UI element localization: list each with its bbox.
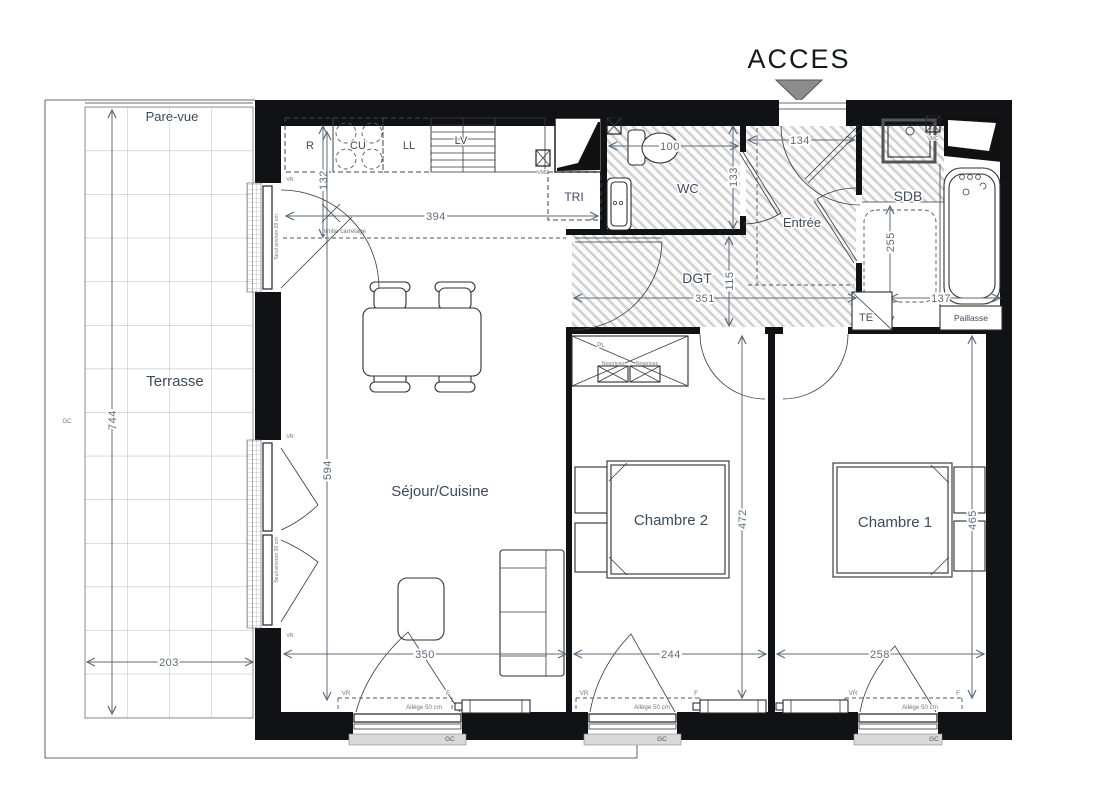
sejour-label: Séjour/Cuisine <box>391 483 489 500</box>
window-chambre2-swing <box>590 634 675 712</box>
wall-chambre2-chambre1 <box>768 334 775 712</box>
floor-plan-page: Pare-vue Terrasse GC 744 203 <box>0 0 1108 800</box>
chambre1-height-dim: 465 <box>967 510 979 530</box>
chambre2-label: Chambre 2 <box>634 512 708 529</box>
tile-limit-label: limite carrelage <box>324 228 367 235</box>
dgt-label: DGT <box>682 270 712 286</box>
radiator-chambre2-valve <box>693 703 700 710</box>
wall-right-lower <box>986 327 1012 740</box>
wall-chambers-top-1 <box>566 327 700 334</box>
radiator-chambre1-valve <box>776 703 783 710</box>
dishwasher-label: LV <box>455 135 468 147</box>
vmc-box-kitchen-cross <box>536 150 550 166</box>
rug <box>398 578 444 640</box>
window-sejour: VR F Allège 50 cm GC <box>338 632 466 745</box>
wc-depth-dim: 133 <box>728 167 740 187</box>
nightstand-c1-1 <box>954 467 985 513</box>
window-chambre2-vr: VR <box>580 690 589 697</box>
chair-back-3 <box>370 382 410 392</box>
sdb-depth-dim: 255 <box>885 232 897 252</box>
wall-bottom-1 <box>255 712 353 740</box>
vmc-kitchen-label: VMC <box>537 170 549 176</box>
chambre1-door-arc <box>783 334 848 399</box>
terrace-door-1-vr: VR <box>286 177 293 183</box>
entree-label: Entrée <box>783 215 821 230</box>
kitchen: R CU LL LV VMC TRI 394 132 limite carrel… <box>283 118 621 238</box>
entrance-opening <box>779 100 846 126</box>
wall-wc-entree-2 <box>740 216 746 235</box>
wc-label: WC <box>677 181 699 196</box>
window-chambre2-gc: GC <box>657 736 667 743</box>
terrace-door-1-seuil: Seuil environ 20 cm <box>274 214 280 260</box>
window-chambre1-vr: VR <box>849 690 858 697</box>
entree-width-dim: 134 <box>790 135 810 147</box>
dgt-floor-hatch <box>572 235 746 327</box>
bathtub-icon <box>944 168 1000 304</box>
wall-left-3 <box>255 628 281 712</box>
floor-plan-drawing: Pare-vue Terrasse GC 744 203 <box>0 0 1108 800</box>
kitchen-depth-dim: 132 <box>318 170 330 190</box>
wall-bottom-4 <box>938 712 1012 740</box>
acces-arrow-icon <box>776 80 822 102</box>
wall-sejour-chambre2 <box>566 334 572 712</box>
acces-label: ACCES <box>747 44 850 74</box>
dining-table <box>363 308 481 376</box>
paillasse-label: Paillasse <box>954 313 988 323</box>
radiator-sejour-valve <box>455 703 462 710</box>
washer-label: LL <box>403 140 415 152</box>
window-chambre2-f: F <box>694 690 698 697</box>
chair-seat-2 <box>439 288 471 310</box>
sofa <box>500 550 564 676</box>
wall-left-2 <box>255 292 281 440</box>
window-sejour-gc: GC <box>445 736 455 743</box>
terrace-door-2-swings <box>281 448 318 622</box>
chambre2-width-dim: 244 <box>661 649 681 661</box>
fridge-label: R <box>306 140 314 152</box>
window-sejour-f: F <box>446 690 450 697</box>
sdb-dashed-zone <box>864 210 936 302</box>
terrace-door-2-seuil: Seuil environ 20 cm <box>274 537 280 583</box>
chair-back-4 <box>435 382 475 392</box>
nightstand-c2-1 <box>575 467 607 513</box>
terrace-door-1-cross <box>322 204 340 222</box>
window-sejour-vr: VR <box>342 690 351 697</box>
window-chambre1-allege: Allège 50 cm <box>902 704 938 711</box>
chambre2-room: Chambre 2 472 <box>575 334 765 698</box>
sofa-outline <box>500 550 564 676</box>
te-label: TE <box>859 312 873 324</box>
window-sejour-swing <box>356 632 460 712</box>
dgt-depth-dim: 115 <box>724 271 736 290</box>
chambre1-label: Chambre 1 <box>858 514 932 531</box>
chambre1-width-dim: 258 <box>870 649 890 661</box>
terrace-door-1-leaf <box>281 217 352 288</box>
terrace-width-dim: 203 <box>159 657 179 669</box>
sdb-width-dim: 137 <box>931 293 951 305</box>
terrace-door-2-vr-top: VR <box>286 434 293 440</box>
terrace-label: Terrasse <box>146 373 204 390</box>
sejour-width-dim: 350 <box>415 649 435 661</box>
vmc-sdb-label: VMC <box>927 136 939 142</box>
wall-chambers-top-2 <box>765 327 783 334</box>
radiator-chambre2 <box>700 700 766 713</box>
wall-wc-dgt <box>566 229 746 235</box>
chambre1-room: Chambre 1 465 <box>783 334 985 698</box>
tri-label: TRI <box>564 190 583 204</box>
nightstand-c2-2 <box>575 523 607 572</box>
window-chambre2-allege: Allège 50 cm <box>634 704 670 711</box>
wall-bottom-2 <box>462 712 588 740</box>
sdb-duct-shelf <box>948 120 996 151</box>
window-chambre1-f: F <box>956 690 960 697</box>
sdb-label: SDB <box>894 188 923 204</box>
chair-seat-1 <box>374 288 406 310</box>
radiator-sejour <box>462 700 530 713</box>
radiator-chambre1 <box>783 700 848 713</box>
nourrice-box-2-cross <box>630 366 660 382</box>
terrace-door-2-vr-bottom: VR <box>286 633 293 639</box>
window-sejour-allege: Allège 50 cm <box>406 704 442 711</box>
sejour-height-dim: 594 <box>322 460 334 480</box>
wall-top-left <box>255 100 779 126</box>
wall-left-1 <box>255 100 281 183</box>
chambre2-height-dim: 472 <box>737 509 749 529</box>
pl-label: PL <box>597 342 605 349</box>
terrace-gc-label: GC <box>62 418 72 425</box>
pare-vue-label: Pare-vue <box>146 109 199 124</box>
dgt-width-dim: 351 <box>695 293 715 305</box>
wall-wc-entree-1 <box>740 126 746 152</box>
kitchen-width-dim: 394 <box>426 211 446 223</box>
terrace-door-2-threshold-grid <box>247 440 261 628</box>
terrace-height-dim: 744 <box>107 410 119 430</box>
wall-bottom-3 <box>677 712 858 740</box>
wc-width-dim: 100 <box>660 141 680 153</box>
terrace-door-1-threshold-grid <box>247 183 261 292</box>
hob-label: CU <box>350 140 366 152</box>
wall-entree-sdb-1 <box>856 126 862 195</box>
dining-table-set <box>363 282 481 392</box>
window-chambre1-gc: GC <box>929 736 939 743</box>
chambre2-door-arc <box>700 334 765 399</box>
